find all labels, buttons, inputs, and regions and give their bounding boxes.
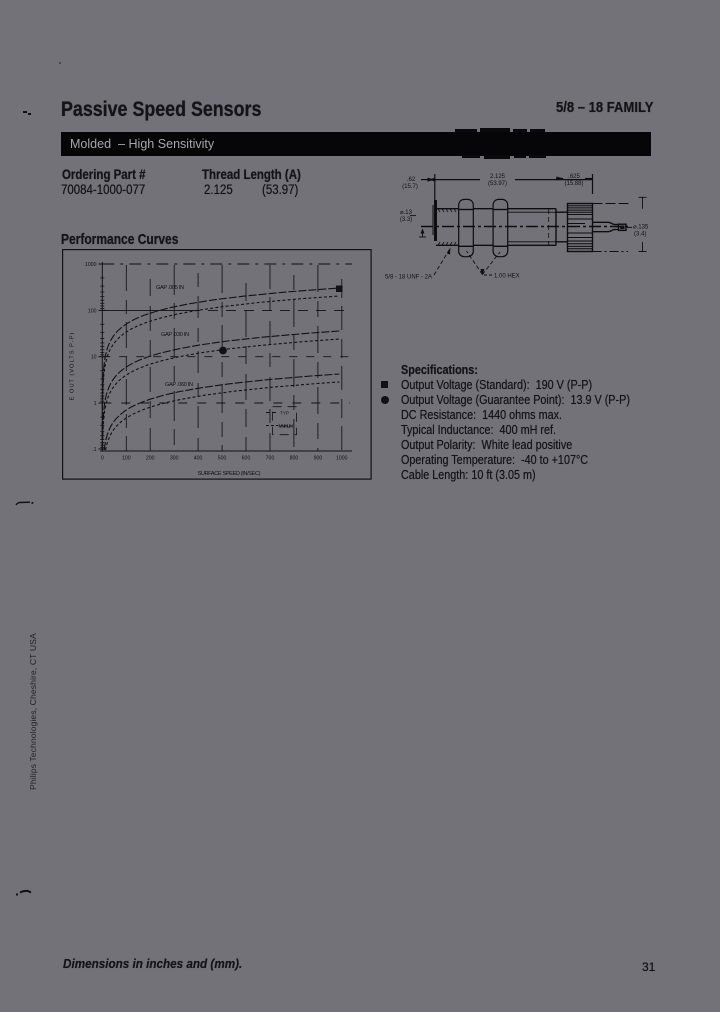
- svg-text:GAP .060 IN: GAP .060 IN: [165, 382, 193, 388]
- svg-text:MINIMUM: MINIMUM: [279, 424, 294, 429]
- svg-text:E OUT (VOLTS P-P): E OUT (VOLTS P-P): [70, 332, 76, 400]
- svg-text:900: 900: [314, 456, 323, 462]
- svg-text:(3.3): (3.3): [400, 217, 412, 223]
- svg-text:1000: 1000: [85, 262, 97, 268]
- svg-text:700: 700: [266, 456, 275, 462]
- svg-text:(3.4): (3.4): [634, 232, 646, 238]
- svg-text:10: 10: [91, 355, 97, 361]
- svg-text:200: 200: [146, 456, 155, 462]
- svg-text:1.00 HEX: 1.00 HEX: [494, 274, 520, 280]
- svg-text:100: 100: [88, 308, 97, 314]
- svg-text:SURFACE SPEED (IN/SEC): SURFACE SPEED (IN/SEC): [198, 471, 261, 477]
- svg-text:⌀.135: ⌀.135: [633, 225, 649, 231]
- svg-text:GAP .030 IN: GAP .030 IN: [161, 332, 189, 338]
- svg-text:400: 400: [194, 456, 203, 462]
- svg-text:600: 600: [242, 456, 251, 462]
- svg-text:TYP: TYP: [280, 411, 289, 416]
- svg-text:⌀.13: ⌀.13: [400, 210, 413, 216]
- svg-text:800: 800: [290, 456, 299, 462]
- svg-text:(15.7): (15.7): [402, 184, 418, 190]
- svg-text:500: 500: [218, 456, 227, 462]
- svg-text:(53.97): (53.97): [488, 181, 507, 187]
- svg-text:.625: .625: [568, 174, 580, 180]
- svg-text:0: 0: [101, 456, 104, 462]
- svg-text:100: 100: [122, 456, 131, 462]
- svg-text:.1: .1: [92, 447, 96, 453]
- svg-text:2.125: 2.125: [490, 174, 506, 180]
- svg-text:GAP .005 IN: GAP .005 IN: [156, 285, 184, 291]
- svg-text:1000: 1000: [336, 456, 348, 462]
- svg-text:(15.88): (15.88): [564, 181, 583, 187]
- svg-text:1: 1: [94, 401, 97, 407]
- svg-text:5/8 - 18 UNF - 2A: 5/8 - 18 UNF - 2A: [385, 275, 432, 281]
- svg-text:.62: .62: [407, 177, 416, 183]
- svg-text:300: 300: [170, 456, 179, 462]
